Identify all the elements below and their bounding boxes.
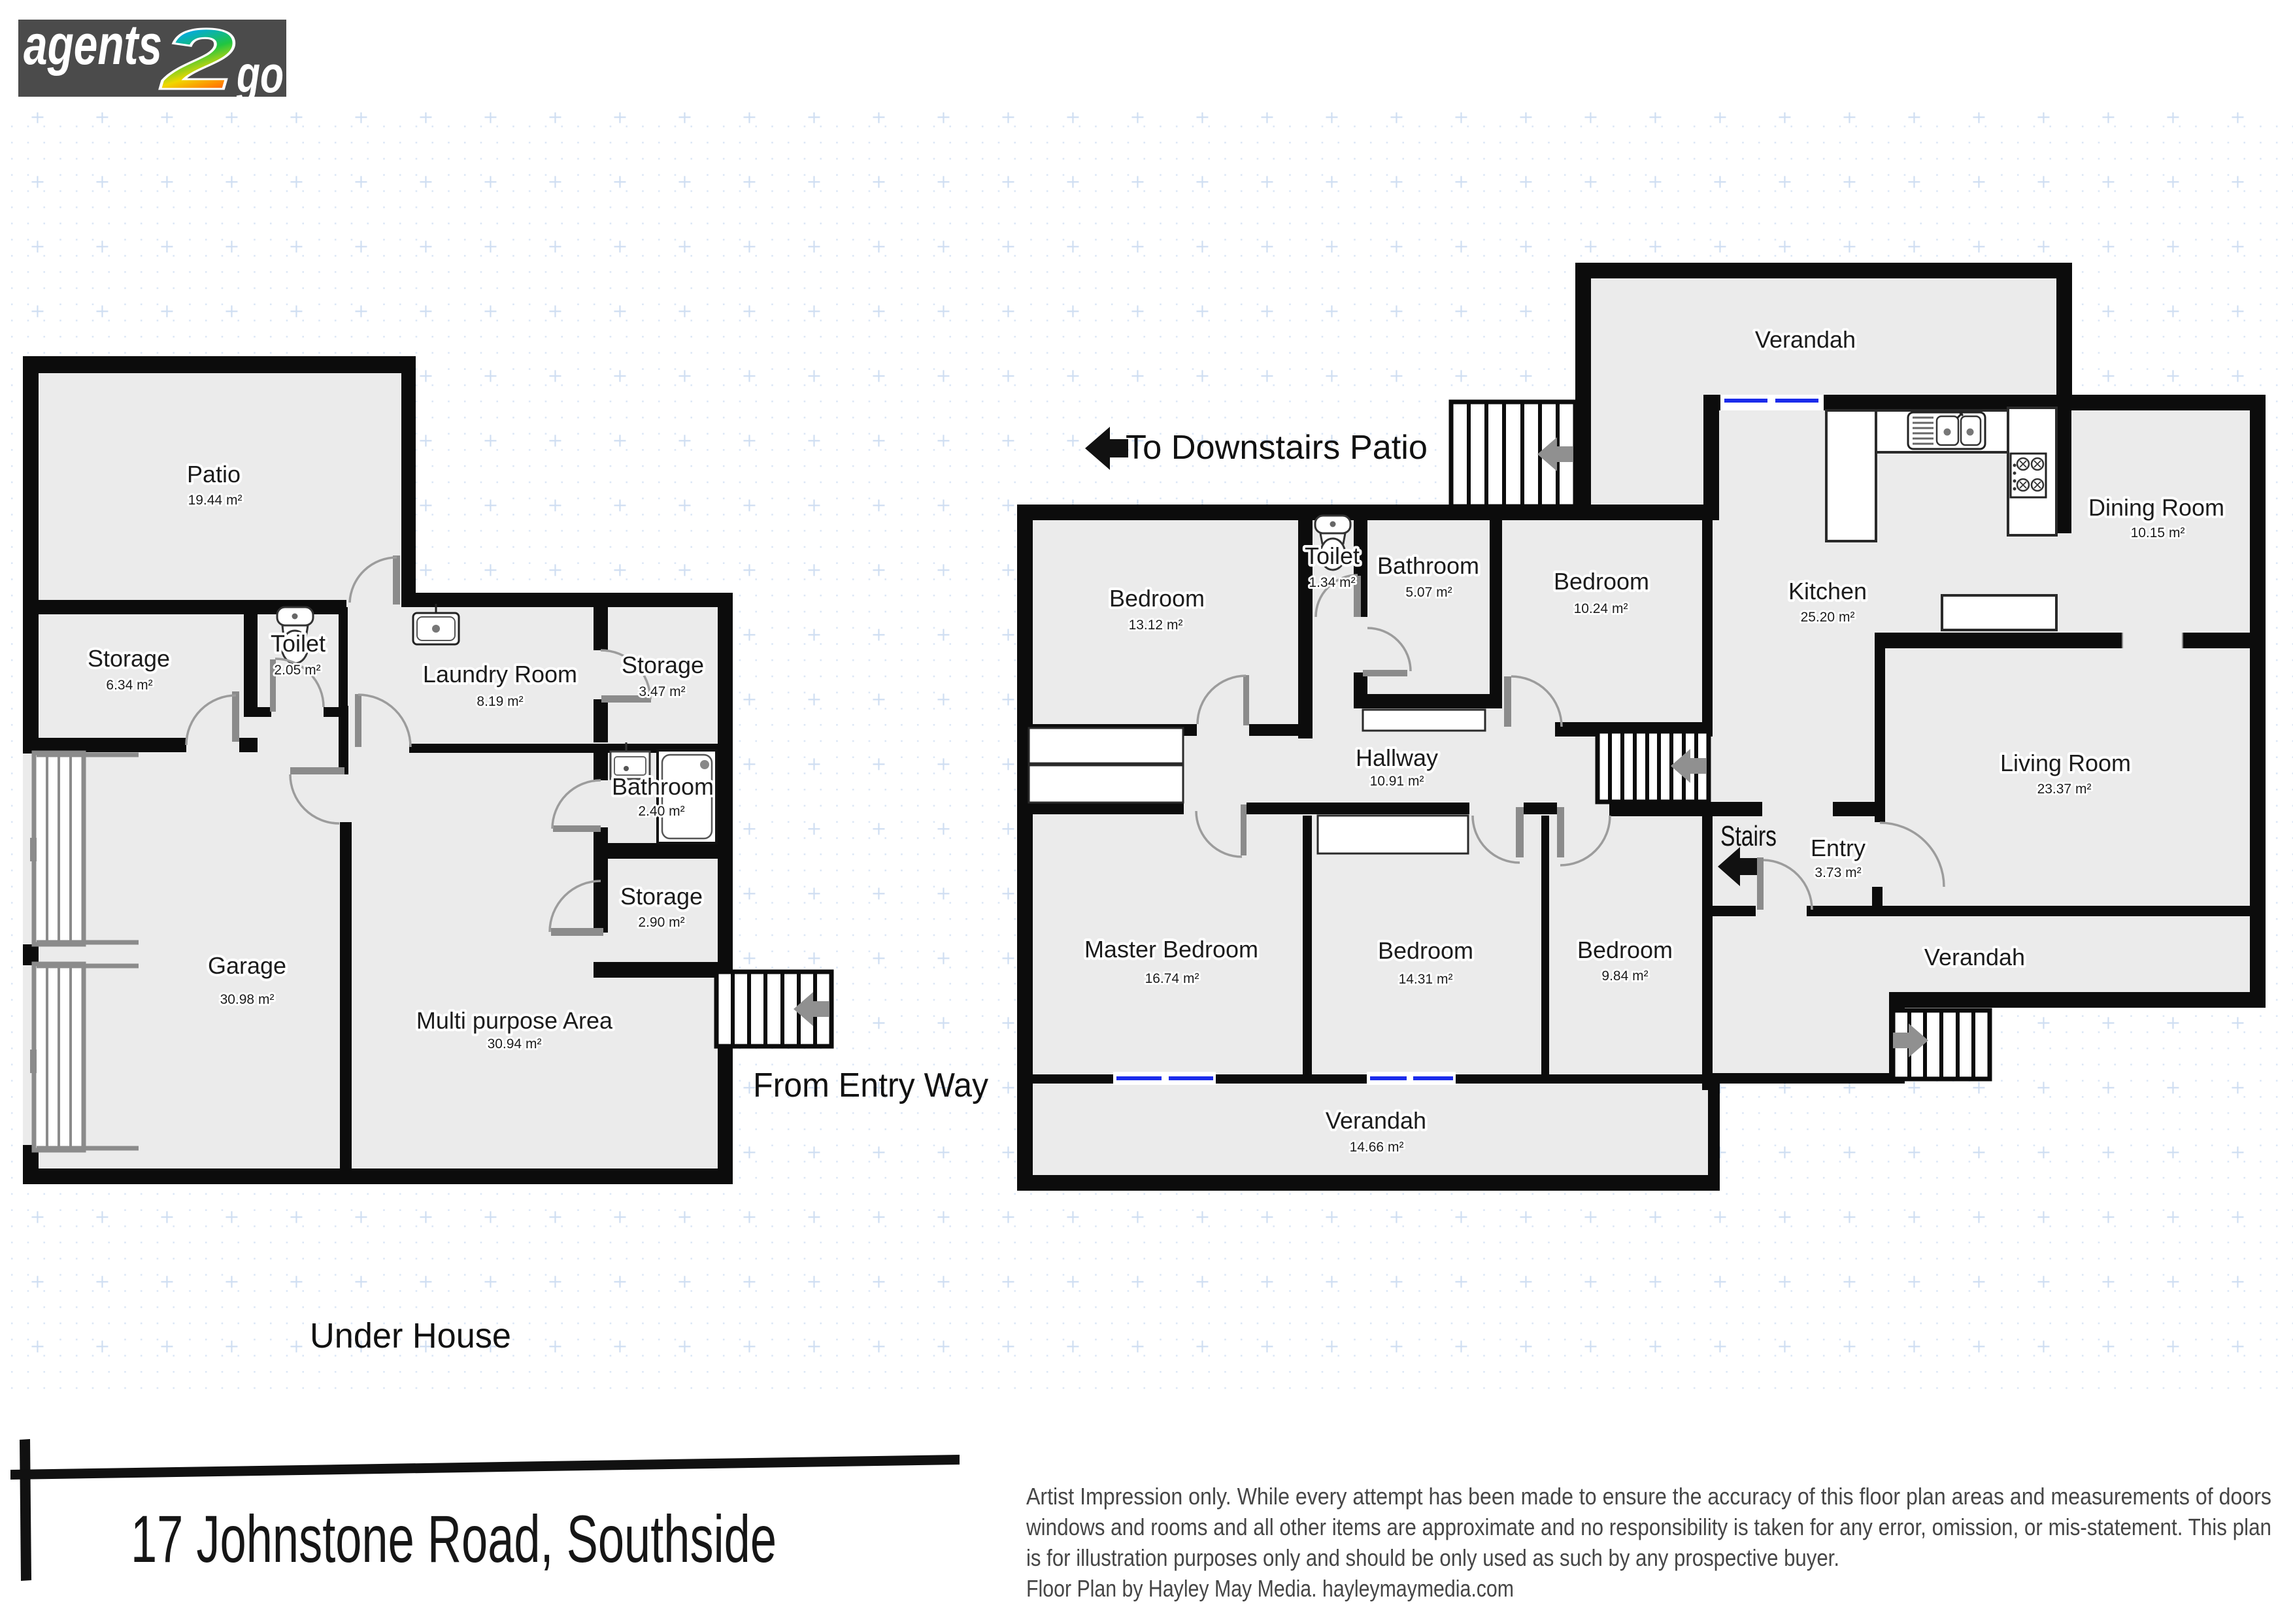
svg-text:Bathroom: Bathroom	[1377, 552, 1479, 579]
svg-text:6.34 m²: 6.34 m²	[106, 678, 152, 693]
svg-text:16.74 m²: 16.74 m²	[1145, 971, 1199, 986]
svg-text:9.84 m²: 9.84 m²	[1601, 969, 1648, 984]
svg-text:Laundry Room: Laundry Room	[423, 661, 577, 688]
svg-text:14.66 m²: 14.66 m²	[1350, 1140, 1404, 1155]
svg-text:2.40 m²: 2.40 m²	[638, 804, 684, 819]
svg-text:Bedroom: Bedroom	[1577, 936, 1673, 963]
svg-text:Kitchen: Kitchen	[1788, 578, 1867, 605]
svg-text:Verandah: Verandah	[1326, 1107, 1426, 1134]
svg-text:8.19 m²: 8.19 m²	[477, 694, 523, 709]
svg-text:Toilet: Toilet	[271, 630, 326, 657]
svg-text:30.98 m²: 30.98 m²	[220, 992, 275, 1007]
svg-text:13.12 m²: 13.12 m²	[1129, 618, 1183, 633]
svg-text:1.34 m²: 1.34 m²	[1309, 575, 1355, 590]
svg-text:Storage: Storage	[88, 645, 170, 672]
svg-text:Living Room: Living Room	[2000, 750, 2131, 776]
svg-text:Bathroom: Bathroom	[612, 773, 714, 800]
svg-text:23.37 m²: 23.37 m²	[2037, 782, 2092, 797]
svg-text:10.24 m²: 10.24 m²	[1574, 601, 1628, 616]
svg-text:Bedroom: Bedroom	[1109, 585, 1205, 612]
svg-text:10.15 m²: 10.15 m²	[2131, 525, 2185, 540]
svg-text:agents: agents	[24, 14, 162, 76]
svg-text:To Downstairs Patio: To Downstairs Patio	[1126, 429, 1428, 467]
svg-text:3.73 m²: 3.73 m²	[1815, 865, 1861, 880]
svg-text:10.91 m²: 10.91 m²	[1370, 774, 1424, 789]
svg-text:Bedroom: Bedroom	[1378, 937, 1473, 964]
svg-text:Verandah: Verandah	[1924, 944, 2025, 970]
svg-text:Multi purpose Area: Multi purpose Area	[416, 1007, 613, 1034]
svg-text:14.31 m²: 14.31 m²	[1399, 972, 1453, 987]
svg-text:Hallway: Hallway	[1356, 744, 1438, 771]
svg-text:17 Johnstone Road, Southside: 17 Johnstone Road, Southside	[131, 1502, 777, 1576]
svg-text:30.94 m²: 30.94 m²	[488, 1036, 542, 1052]
svg-text:Verandah: Verandah	[1755, 326, 1856, 353]
svg-text:Storage: Storage	[622, 652, 704, 678]
svg-text:Garage: Garage	[208, 952, 286, 979]
svg-text:windows and rooms and all othe: windows and rooms and all other items ar…	[1026, 1514, 2271, 1540]
svg-text:Stairs: Stairs	[1720, 820, 1777, 852]
svg-text:Artist Impression only. While: Artist Impression only. While every atte…	[1026, 1483, 2271, 1510]
svg-text:25.20 m²: 25.20 m²	[1801, 610, 1855, 625]
svg-text:From Entry Way: From Entry Way	[753, 1067, 988, 1104]
svg-text:Master Bedroom: Master Bedroom	[1084, 936, 1258, 963]
svg-text:2.05 m²: 2.05 m²	[274, 663, 320, 678]
svg-text:is for illustration purposes o: is for illustration purposes only and sh…	[1026, 1544, 1839, 1571]
svg-text:Floor Plan by Hayley May Media: Floor Plan by Hayley May Media. hayleyma…	[1026, 1575, 1514, 1602]
svg-text:19.44 m²: 19.44 m²	[188, 493, 243, 508]
svg-text:2.90 m²: 2.90 m²	[638, 915, 684, 930]
svg-text:5.07 m²: 5.07 m²	[1405, 585, 1452, 600]
svg-text:2: 2	[159, 11, 235, 107]
svg-text:Under House: Under House	[310, 1316, 511, 1355]
svg-text:Toilet: Toilet	[1305, 542, 1360, 569]
svg-text:3.47 m²: 3.47 m²	[639, 684, 685, 699]
svg-text:go: go	[236, 45, 284, 103]
svg-text:Patio: Patio	[187, 461, 241, 488]
svg-text:Entry: Entry	[1811, 835, 1866, 861]
svg-text:Storage: Storage	[620, 883, 703, 910]
svg-text:Dining Room: Dining Room	[2088, 494, 2224, 521]
svg-text:Bedroom: Bedroom	[1554, 568, 1649, 595]
